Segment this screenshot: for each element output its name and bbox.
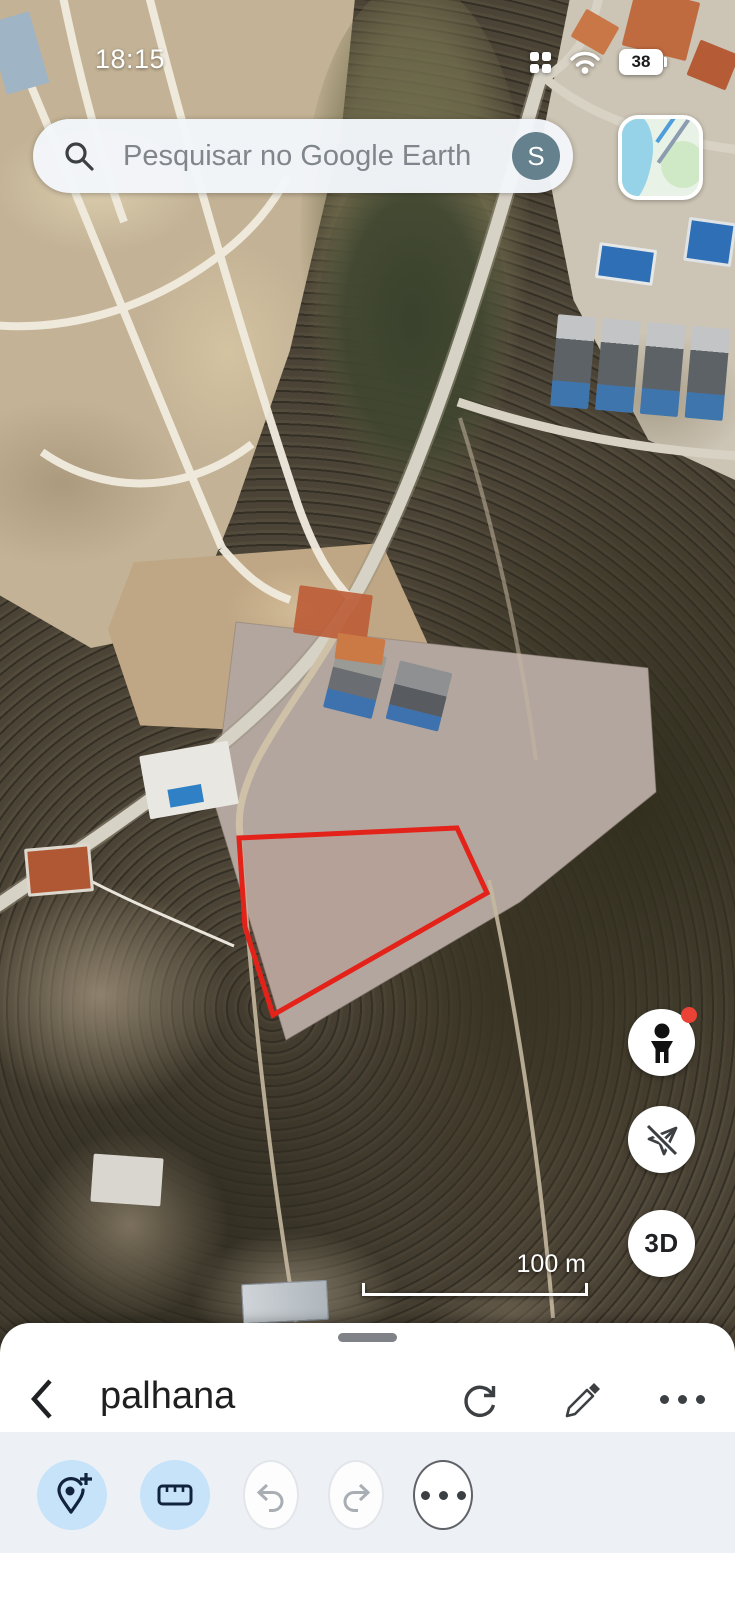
edit-button[interactable]: [560, 1377, 606, 1421]
notification-dot: [681, 1007, 697, 1023]
google-earth-app-screen: 18:15 38 S: [0, 0, 735, 1600]
search-input[interactable]: [121, 139, 512, 174]
redo-button[interactable]: [328, 1460, 384, 1530]
more-tools-button[interactable]: [413, 1460, 473, 1530]
project-title: palhana: [100, 1375, 235, 1418]
measure-ruler-button[interactable]: [140, 1460, 210, 1530]
redo-icon: [337, 1476, 375, 1514]
map-feature-house-row: [549, 314, 735, 440]
edit-toolbar: [0, 1432, 735, 1553]
project-bottom-sheet: palhana: [0, 1323, 735, 1600]
search-bar[interactable]: S: [33, 119, 573, 193]
map-feature-building: [90, 1154, 163, 1207]
add-placemark-icon: [50, 1472, 94, 1518]
pegman-street-view-button[interactable]: [628, 1009, 695, 1076]
ruler-icon: [153, 1477, 197, 1513]
map-feature-farmhouse: [24, 843, 94, 897]
back-button[interactable]: [24, 1377, 60, 1421]
sheet-drag-handle[interactable]: [338, 1333, 397, 1342]
account-avatar[interactable]: S: [512, 132, 560, 180]
search-icon: [63, 140, 95, 172]
refresh-icon: [457, 1378, 499, 1420]
refresh-button[interactable]: [455, 1377, 501, 1421]
fly-mode-disabled-button[interactable]: [628, 1106, 695, 1173]
more-dots-icon: [660, 1395, 705, 1404]
more-tools-dots-icon: [421, 1491, 466, 1500]
back-chevron-icon: [28, 1377, 56, 1421]
map-feature-construction: [293, 585, 373, 643]
map-feature-greenhouse: [241, 1280, 329, 1324]
3d-toggle-button[interactable]: 3D: [628, 1210, 695, 1277]
map-feature-pool: [683, 217, 735, 267]
undo-button[interactable]: [243, 1460, 299, 1530]
undo-icon: [252, 1476, 290, 1514]
no-fly-icon: [641, 1119, 683, 1161]
edit-pencil-icon: [562, 1378, 604, 1420]
map-style-thumbnail[interactable]: [618, 115, 703, 200]
more-options-button[interactable]: [659, 1377, 705, 1421]
thumbnail-water: [618, 115, 657, 200]
add-placemark-button[interactable]: [37, 1460, 107, 1530]
pegman-icon: [642, 1021, 682, 1065]
